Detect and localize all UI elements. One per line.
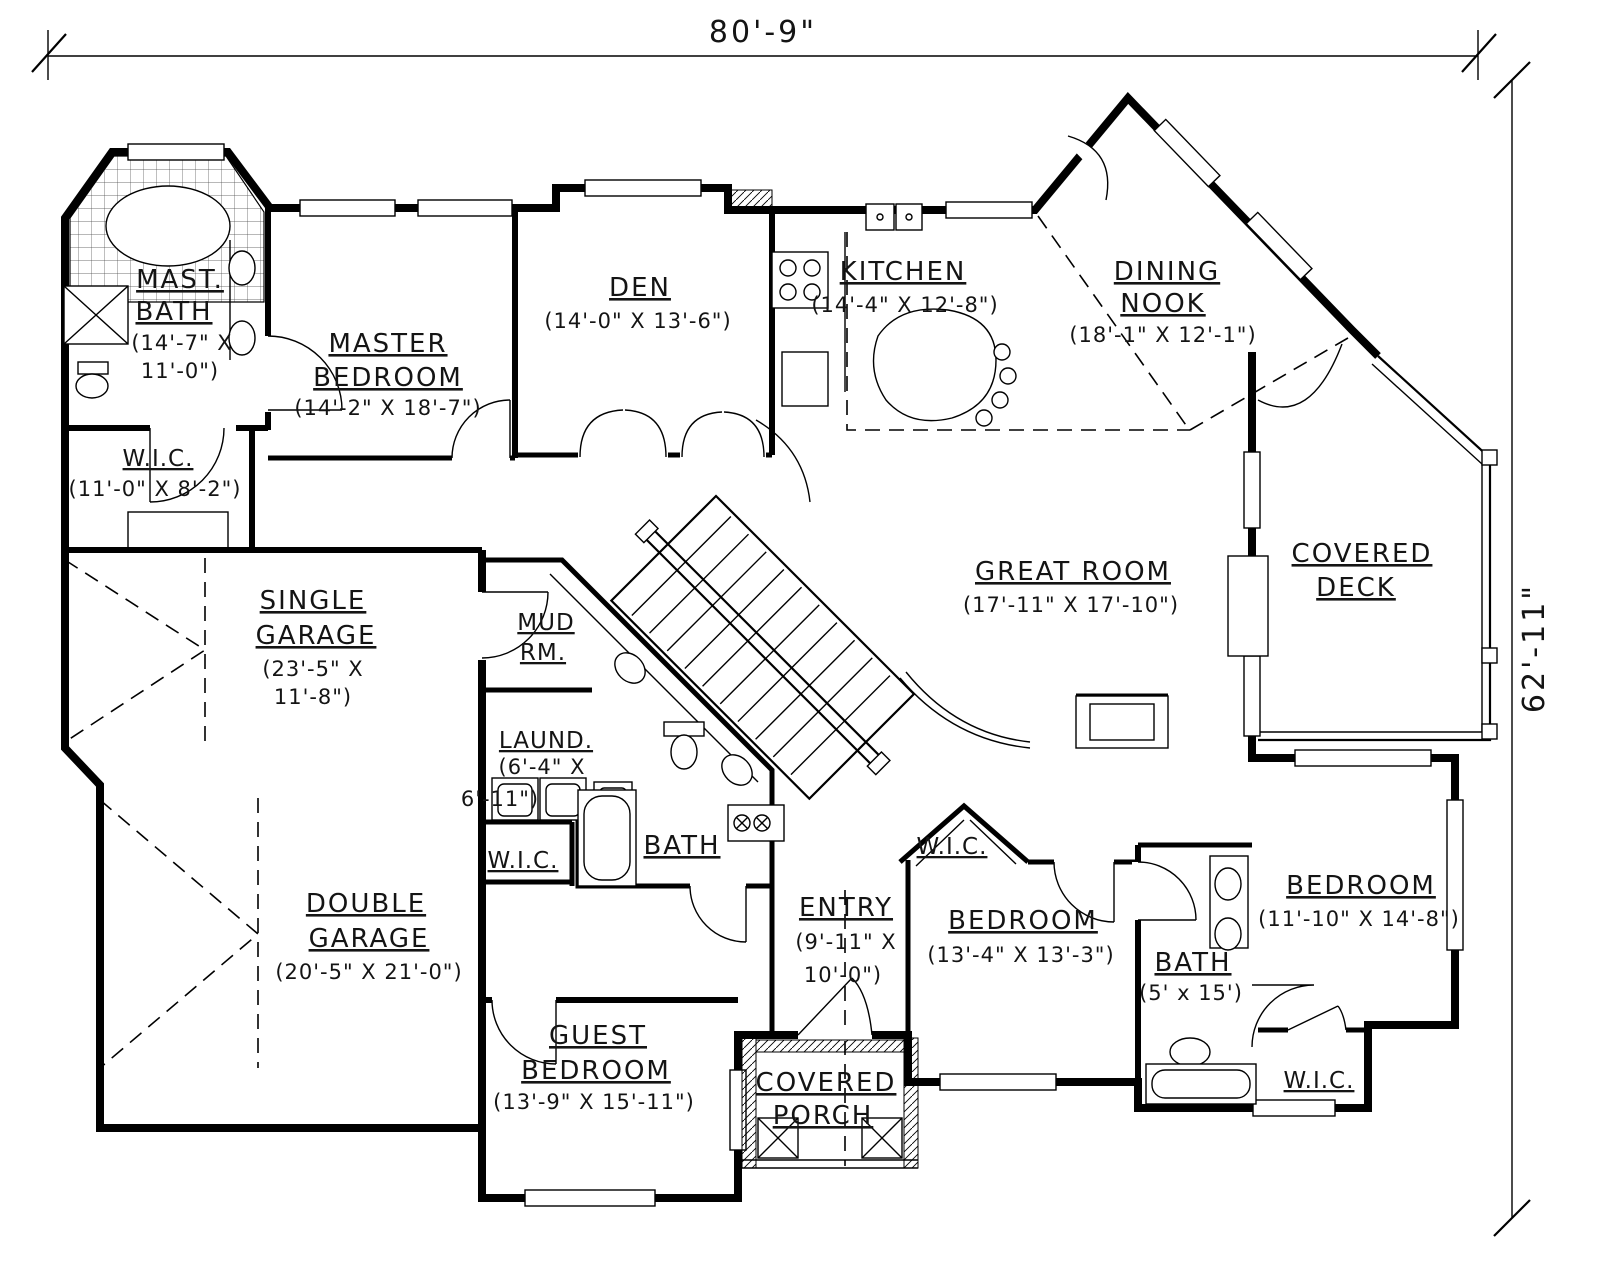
overall-height-dimension: 62'-11" [1517, 583, 1552, 713]
window-icon [585, 180, 701, 196]
window-icon [1253, 1100, 1335, 1116]
window-icon [525, 1190, 655, 1206]
room-label-covered-deck: COVERED [1292, 539, 1433, 569]
deck-post-icon [1482, 724, 1497, 739]
toilet-icon [671, 735, 697, 769]
sink-icon [229, 251, 255, 285]
sink-icon [1215, 868, 1241, 900]
window-icon [128, 144, 224, 160]
room-dims-mast-bath: 11'-0") [141, 359, 219, 383]
sink-icon [229, 321, 255, 355]
window-icon [1295, 750, 1431, 766]
stool-icon [976, 410, 992, 426]
room-label-mast-bath: MAST. [136, 265, 224, 295]
window-icon [1244, 452, 1260, 528]
room-dims-bath2: (5' x 15') [1139, 981, 1243, 1005]
room-dims-wic-master: (11'-0" X 8'-2") [69, 477, 242, 501]
room-dims-entry: (9'-11" X [795, 930, 896, 954]
room-label-dining-nook: DINING [1114, 257, 1220, 287]
room-dims-laundry: (6'-4" X [499, 755, 586, 779]
room-label-mud-room: RM. [520, 640, 566, 666]
room-label-den: DEN [609, 273, 671, 303]
room-label-guest-bedroom: BEDROOM [521, 1056, 671, 1086]
stool-icon [994, 344, 1010, 360]
toilet-tank-icon [78, 362, 108, 374]
floor-plan-drawing: 80'-9" 62'-11" MAST. BATH (14'-7" X 11'-… [0, 0, 1600, 1280]
room-dims-mast-bath: (14'-7" X [131, 331, 232, 355]
stool-icon [1000, 368, 1016, 384]
deck-post-icon [1482, 450, 1497, 465]
vanity-icon [728, 805, 784, 841]
room-label-master-bedroom: MASTER [328, 329, 447, 359]
toilet-tank-icon [664, 722, 704, 736]
window-seat [1228, 556, 1268, 656]
overall-width-dimension: 80'-9" [709, 15, 817, 50]
room-label-entry: ENTRY [799, 893, 893, 923]
room-label-kitchen: KITCHEN [840, 257, 967, 287]
room-label-great-room: GREAT ROOM [975, 557, 1171, 587]
room-label-wic-master: W.I.C. [123, 446, 194, 472]
stool-icon [992, 392, 1008, 408]
room-label-mud-room: MUD [517, 610, 574, 636]
room-label-bedroom3: BEDROOM [1286, 871, 1436, 901]
bathtub-oval-icon [106, 186, 230, 266]
room-label-laundry: LAUND. [499, 728, 593, 754]
room-dims-great-room: (17'-11" X 17'-10") [963, 593, 1179, 617]
room-label-wic-guest: W.I.C. [488, 848, 559, 874]
room-label-covered-porch: PORCH [773, 1101, 874, 1131]
room-dims-den: (14'-0" X 13'-6") [544, 309, 731, 333]
floor-plan-canvas: 80'-9" 62'-11" MAST. BATH (14'-7" X 11'-… [0, 0, 1600, 1280]
room-label-dining-nook: NOOK [1120, 289, 1205, 319]
wall-hatch [728, 190, 772, 208]
room-label-wic-bedroom2: W.I.C. [917, 834, 988, 860]
room-label-covered-deck: DECK [1316, 573, 1396, 603]
room-label-double-garage: DOUBLE [306, 889, 426, 919]
room-label-covered-porch: COVERED [756, 1068, 897, 1098]
window-icon [418, 200, 512, 216]
room-dims-single-garage: 11'-8") [274, 685, 352, 709]
room-label-bedroom2: BEDROOM [948, 906, 1098, 936]
toilet-icon [1170, 1038, 1210, 1066]
deck-post-icon [1482, 648, 1497, 663]
room-label-bath2: BATH [1154, 948, 1231, 978]
room-dims-single-garage: (23'-5" X [262, 657, 363, 681]
kitchen-sink-icon [866, 204, 894, 230]
window-icon [1244, 656, 1260, 736]
refrigerator-icon [782, 352, 828, 406]
window-icon [300, 200, 395, 216]
room-dims-entry: 10'-0") [804, 963, 882, 987]
room-label-wic-bedroom3: W.I.C. [1284, 1068, 1355, 1094]
window-icon [940, 1074, 1056, 1090]
room-dims-dining-nook: (18'-1" X 12'-1") [1069, 323, 1256, 347]
room-label-master-bedroom: BEDROOM [313, 363, 463, 393]
room-label-single-garage: GARAGE [256, 621, 377, 651]
toilet-icon [76, 374, 108, 398]
room-dims-double-garage: (20'-5" X 21'-0") [275, 960, 462, 984]
room-dims-laundry: 6'-11") [461, 787, 539, 811]
room-dims-guest-bedroom: (13'-9" X 15'-11") [493, 1090, 695, 1114]
room-dims-bedroom3: (11'-10" X 14'-8") [1258, 907, 1460, 931]
room-dims-master-bedroom: (14'-2" X 18'-7") [294, 396, 481, 420]
room-label-single-garage: SINGLE [260, 586, 367, 616]
room-dims-kitchen: (14'-4" X 12'-8") [811, 293, 998, 317]
room-label-mast-bath: BATH [135, 297, 212, 327]
room-label-double-garage: GARAGE [309, 924, 430, 954]
room-label-guest-bedroom: GUEST [549, 1021, 647, 1051]
room-label-bath-hall: BATH [643, 831, 720, 861]
kitchen-sink-icon [896, 204, 922, 230]
room-dims-bedroom2: (13'-4" X 13'-3") [927, 943, 1114, 967]
sink-icon [1215, 918, 1241, 950]
window-icon [946, 202, 1032, 218]
